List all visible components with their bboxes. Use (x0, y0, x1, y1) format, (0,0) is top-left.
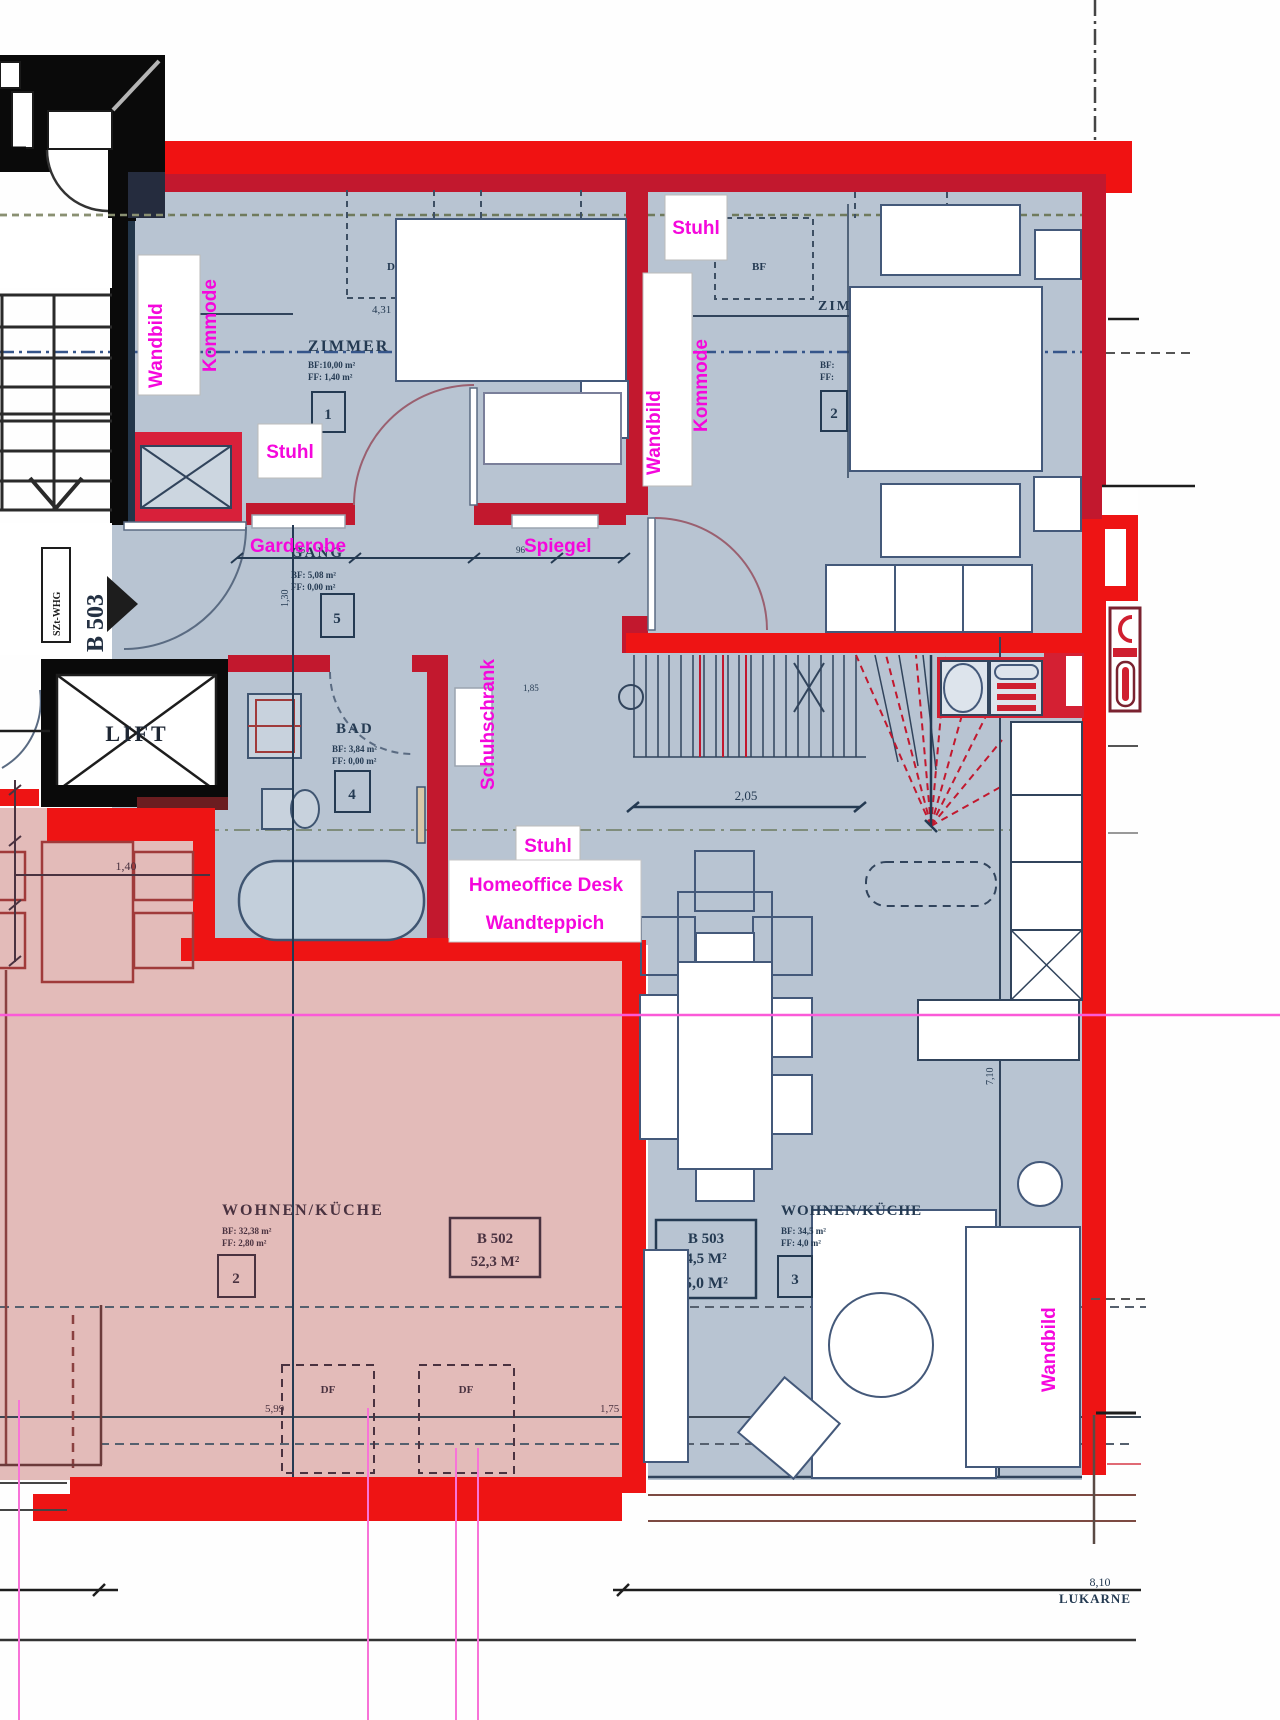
svg-text:FF:: FF: (820, 372, 834, 382)
svg-text:5,0 M²: 5,0 M² (684, 1275, 728, 1292)
svg-text:Spiegel: Spiegel (524, 536, 592, 557)
svg-text:ZIMMER: ZIMMER (308, 338, 389, 355)
svg-text:BAD: BAD (336, 721, 374, 737)
svg-text:FF: 2,80 m²: FF: 2,80 m² (222, 1238, 267, 1248)
svg-text:Garderobe: Garderobe (250, 536, 346, 557)
svg-text:LUKARNE: LUKARNE (1059, 1591, 1131, 1606)
svg-text:BF: 32,38 m²: BF: 32,38 m² (222, 1226, 272, 1236)
svg-text:BF: 34,5 m²: BF: 34,5 m² (781, 1226, 826, 1236)
svg-text:FF: 1,40 m²: FF: 1,40 m² (308, 372, 353, 382)
svg-text:52,3 M²: 52,3 M² (471, 1254, 520, 1270)
svg-text:4,5 M²: 4,5 M² (685, 1251, 727, 1267)
svg-text:BF: 3,84 m²: BF: 3,84 m² (332, 744, 377, 754)
svg-text:Wandbild: Wandbild (146, 303, 167, 388)
svg-text:SZt-WHG: SZt-WHG (52, 591, 63, 636)
svg-text:2: 2 (232, 1271, 240, 1287)
svg-text:Homeoffice Desk: Homeoffice Desk (469, 875, 624, 896)
svg-text:1,30: 1,30 (280, 590, 291, 608)
svg-text:1,40: 1,40 (116, 859, 137, 873)
svg-text:Kommode: Kommode (200, 279, 221, 372)
svg-text:Stuhl: Stuhl (266, 442, 314, 463)
svg-text:B 503: B 503 (688, 1231, 724, 1247)
svg-text:4,31: 4,31 (372, 304, 391, 316)
svg-text:BF: BF (752, 261, 766, 273)
svg-text:1,85: 1,85 (523, 683, 539, 693)
svg-text:WOHNEN/KÜCHE: WOHNEN/KÜCHE (781, 1202, 922, 1219)
svg-text:5,99: 5,99 (265, 1403, 285, 1415)
svg-text:BF: 5,08 m²: BF: 5,08 m² (291, 570, 336, 580)
svg-text:8,10: 8,10 (1090, 1575, 1111, 1589)
svg-text:2: 2 (830, 406, 838, 422)
svg-text:2,05: 2,05 (735, 788, 758, 803)
svg-text:Kommode: Kommode (691, 339, 712, 432)
svg-text:WOHNEN/KÜCHE: WOHNEN/KÜCHE (222, 1201, 384, 1219)
svg-text:FF: 4,0 m²: FF: 4,0 m² (781, 1238, 821, 1248)
svg-text:1: 1 (324, 407, 332, 423)
svg-text:5: 5 (333, 611, 341, 627)
svg-text:DF: DF (321, 1384, 336, 1396)
svg-text:Wandbild: Wandbild (1039, 1307, 1060, 1392)
svg-text:4: 4 (348, 787, 356, 803)
svg-text:Stuhl: Stuhl (672, 218, 720, 239)
svg-text:LIFT: LIFT (105, 721, 168, 746)
svg-text:BF:: BF: (820, 360, 835, 370)
svg-text:FF: 0,00 m²: FF: 0,00 m² (291, 582, 336, 592)
svg-text:FF: 0,00 m²: FF: 0,00 m² (332, 756, 377, 766)
svg-text:BF:10,00 m²: BF:10,00 m² (308, 360, 355, 370)
svg-text:3: 3 (791, 1272, 799, 1288)
svg-text:1,75: 1,75 (600, 1403, 620, 1415)
svg-text:DF: DF (459, 1384, 474, 1396)
svg-text:Wandteppich: Wandteppich (486, 913, 605, 934)
svg-text:7,10: 7,10 (985, 1068, 996, 1086)
svg-text:Wandbild: Wandbild (644, 390, 665, 475)
svg-text:Schuhschrank: Schuhschrank (478, 659, 499, 790)
svg-text:B 502: B 502 (477, 1231, 513, 1247)
svg-text:Stuhl: Stuhl (524, 836, 572, 857)
svg-text:B 503: B 503 (83, 594, 109, 652)
